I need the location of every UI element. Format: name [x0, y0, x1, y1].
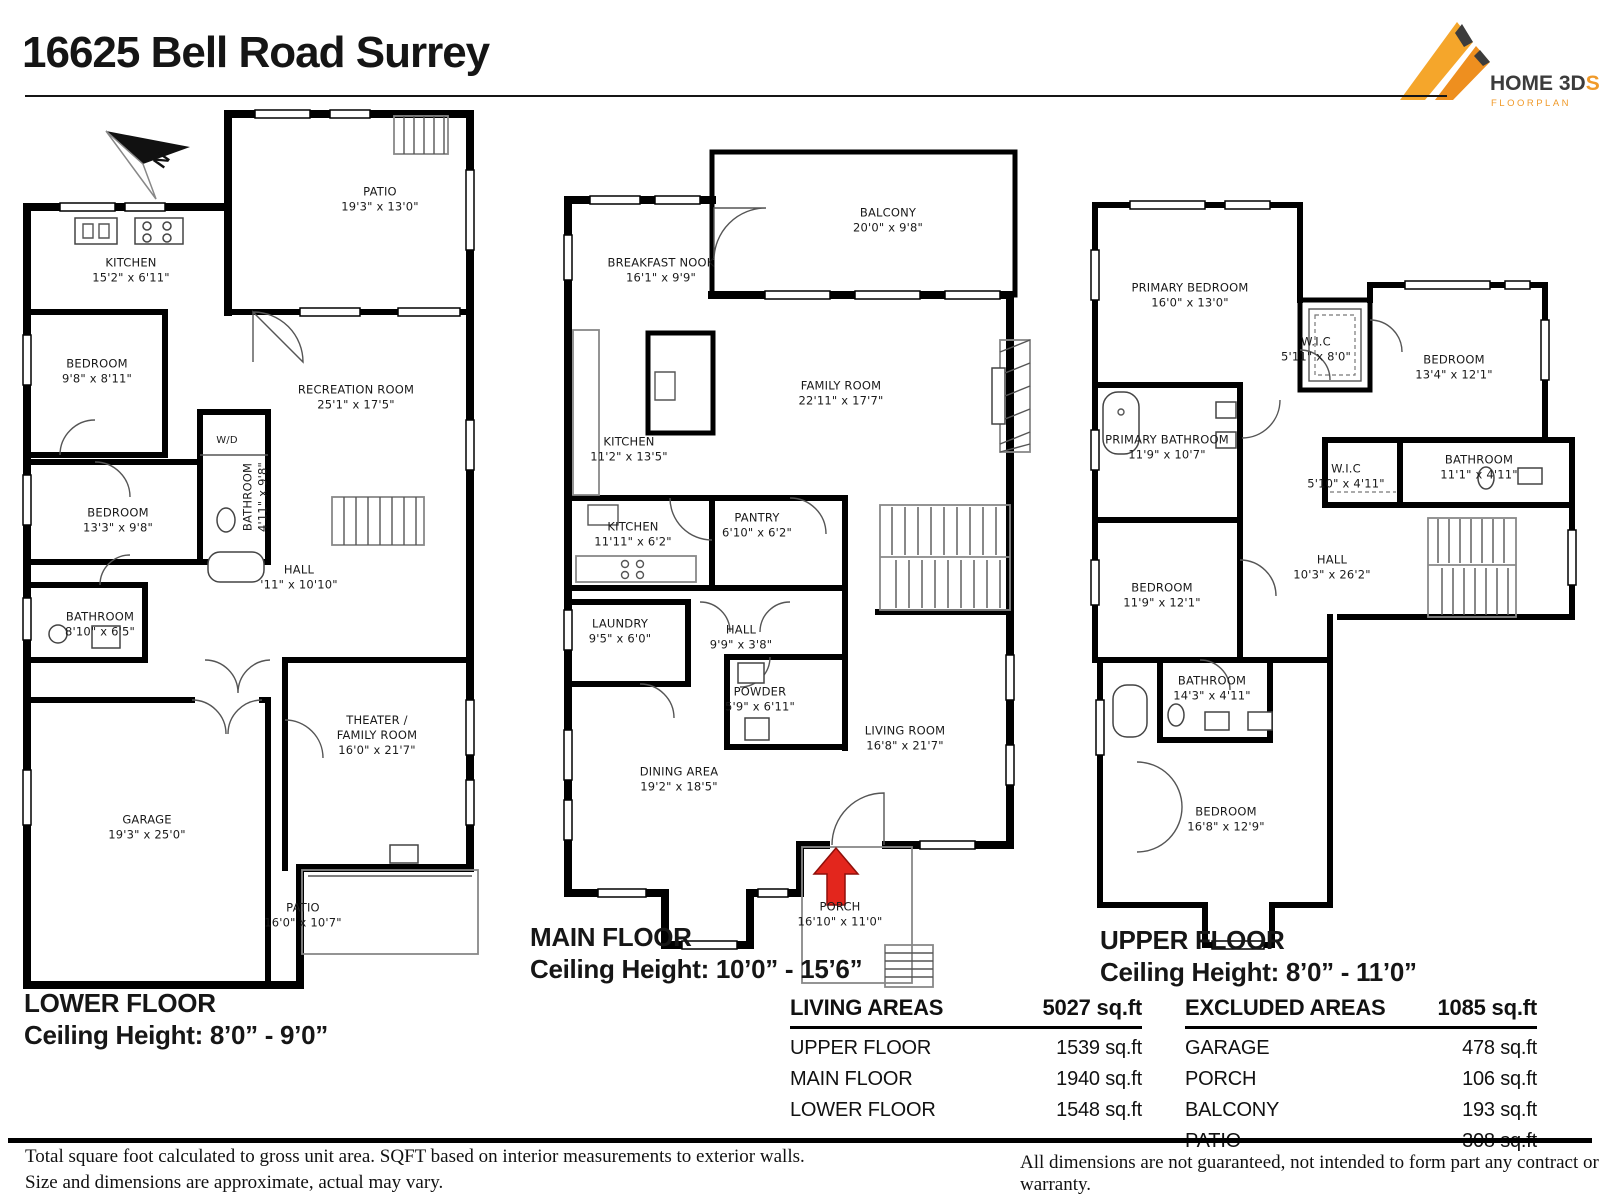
room-label-pantry: PANTRY6'10" x 6'2": [722, 496, 792, 541]
room-label-powder: POWDER5'9" x 6'11": [725, 670, 795, 715]
room-label-main-kitchen: KITCHEN11'2" x 13'5": [590, 420, 668, 465]
living-areas-header: LIVING AREAS5027 sq.ft: [790, 995, 1142, 1029]
room-label-wic1: W.I.C5'11" x 8'0": [1281, 320, 1351, 365]
room-label-wic2: W.I.C5'10" x 4'11": [1307, 447, 1385, 492]
upper-stairs: [1428, 518, 1516, 617]
room-label-balcony: BALCONY20'0" x 9'8": [853, 191, 923, 236]
table-row: BALCONY193 sq.ft: [1185, 1099, 1537, 1122]
table-row: MAIN FLOOR1940 sq.ft: [790, 1068, 1142, 1091]
page-title: 16625 Bell Road Surrey: [22, 28, 489, 78]
room-label-lower-patio: PATIO19'3" x 13'0": [341, 170, 419, 215]
logo-subtitle: FLOORPLAN: [1491, 98, 1571, 109]
room-label-upper-bathroom-r: BATHROOM11'1" x 4'11": [1440, 438, 1518, 483]
room-label-upper-bedroom-b: BEDROOM16'8" x 12'9": [1187, 790, 1265, 835]
table-row: LOWER FLOOR1548 sq.ft: [790, 1099, 1142, 1122]
room-label-spice-kitchen: KITCHEN11'11" x 6'2": [594, 505, 672, 550]
room-label-family-room: FAMILY ROOM22'11" x 17'7": [798, 364, 883, 409]
room-label-main-hall: HALL9'9" x 3'8": [710, 608, 773, 653]
floorplan-page: N HOME 3DS FLOORPLAN 16625 Bell Road Sur…: [0, 0, 1600, 1200]
room-label-recreation-room: RECREATION ROOM25'1" x 17'5": [298, 368, 414, 413]
logo-text: HOME 3DS: [1490, 72, 1600, 95]
room-label-lower-bathroom2: BATHROOM8'10" x 6'5": [65, 595, 135, 640]
footer-disclaimer-left1: Total square foot calculated to gross un…: [25, 1146, 805, 1168]
room-label-living-room: LIVING ROOM16'8" x 21'7": [865, 709, 945, 754]
main-floor-title: MAIN FLOORCeiling Height: 10’0” - 15’6”: [530, 922, 862, 985]
room-label-lower-bedroom1: BEDROOM9'8" x 8'11": [62, 342, 132, 387]
excluded-areas-header: EXCLUDED AREAS1085 sq.ft: [1185, 995, 1537, 1029]
excluded-areas-table: EXCLUDED AREAS1085 sq.ft GARAGE478 sq.ft…: [1185, 995, 1537, 1153]
room-label-upper-bedroom-ml: BEDROOM11'9" x 12'1": [1123, 566, 1201, 611]
room-label-upper-bedroom-tr: BEDROOM13'4" x 12'1": [1415, 338, 1493, 383]
footer-rule: [8, 1138, 1592, 1143]
table-row: UPPER FLOOR1539 sq.ft: [790, 1037, 1142, 1060]
table-row: GARAGE478 sq.ft: [1185, 1037, 1537, 1060]
room-label-lower-bedroom2: BEDROOM13'3" x 9'8": [83, 491, 153, 536]
north-compass: N: [106, 131, 190, 199]
room-label-lower-hall: HALL'11" x 10'10": [260, 548, 338, 593]
room-label-primary-bathroom: PRIMARY BATHROOM11'9" x 10'7": [1105, 418, 1229, 463]
main-windows: [564, 196, 1014, 949]
lower-floor-title: LOWER FLOORCeiling Height: 8’0” - 9’0”: [24, 988, 328, 1051]
room-label-primary-bedroom: PRIMARY BEDROOM16'0" x 13'0": [1131, 266, 1248, 311]
title-rule: [25, 95, 1447, 97]
porch-stairs: [885, 945, 933, 987]
main-stairs: [880, 505, 1010, 610]
living-areas-table: LIVING AREAS5027 sq.ft UPPER FLOOR1539 s…: [790, 995, 1142, 1122]
room-label-lower-kitchen: KITCHEN15'2" x 6'11": [92, 241, 170, 286]
room-label-lower-patio2: PATIO16'0" x 10'7": [264, 886, 342, 931]
room-label-laundry: LAUNDRY9'5" x 6'0": [589, 602, 652, 647]
room-label-wd: W/D: [216, 421, 238, 447]
footer-disclaimer-right: All dimensions are not guaranteed, not i…: [1020, 1152, 1600, 1196]
room-label-upper-bathroom-b: BATHROOM14'3" x 4'11": [1173, 659, 1251, 704]
room-label-theater: THEATER / FAMILY ROOM16'0" x 21'7": [337, 698, 418, 758]
room-label-lower-bathroom1: BATHROOM4'11" x 9'8": [226, 462, 271, 532]
upper-floor-title: UPPER FLOORCeiling Height: 8’0” - 11’0”: [1100, 925, 1417, 988]
room-label-breakfast-nook: BREAKFAST NOOK16'1" x 9'9": [607, 241, 714, 286]
footer-disclaimer-left2: Size and dimensions are approximate, act…: [25, 1172, 443, 1194]
room-label-garage: GARAGE19'3" x 25'0": [108, 798, 186, 843]
room-label-dining-area: DINING AREA19'2" x 18'5": [640, 750, 719, 795]
room-label-upper-hall: HALL10'3" x 26'2": [1293, 538, 1371, 583]
table-row: PORCH106 sq.ft: [1185, 1068, 1537, 1091]
